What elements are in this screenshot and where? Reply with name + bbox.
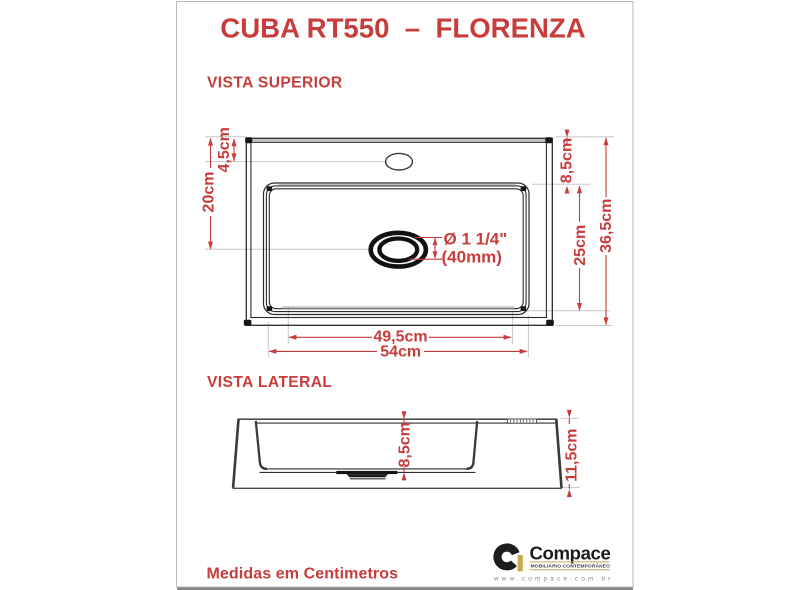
svg-text:4,5cm: 4,5cm — [216, 127, 233, 172]
svg-text:8,5cm: 8,5cm — [397, 422, 414, 467]
svg-text:25cm: 25cm — [572, 225, 589, 266]
svg-text:36,5cm: 36,5cm — [598, 199, 615, 253]
svg-text:20cm: 20cm — [201, 172, 218, 213]
svg-text:8,5cm: 8,5cm — [559, 138, 576, 183]
svg-text:VISTA LATERAL: VISTA LATERAL — [207, 374, 332, 391]
svg-text:11,5cm: 11,5cm — [563, 429, 580, 482]
svg-text:Compace: Compace — [530, 542, 611, 563]
svg-text:CUBA RT550 – FLORENZA: CUBA RT550 – FLORENZA — [220, 13, 585, 44]
svg-text:Ø 1 1/4": Ø 1 1/4" — [444, 229, 508, 248]
svg-text:Medidas em Centimetros: Medidas em Centimetros — [207, 566, 399, 583]
svg-text:www.compace.com.br: www.compace.com.br — [493, 576, 613, 583]
svg-text:(40mm): (40mm) — [442, 247, 502, 266]
svg-text:VISTA SUPERIOR: VISTA SUPERIOR — [207, 75, 343, 92]
svg-text:54cm: 54cm — [380, 344, 421, 361]
svg-text:MOBILIÁRIO CONTEMPORÂNEO: MOBILIÁRIO CONTEMPORÂNEO — [531, 562, 611, 569]
